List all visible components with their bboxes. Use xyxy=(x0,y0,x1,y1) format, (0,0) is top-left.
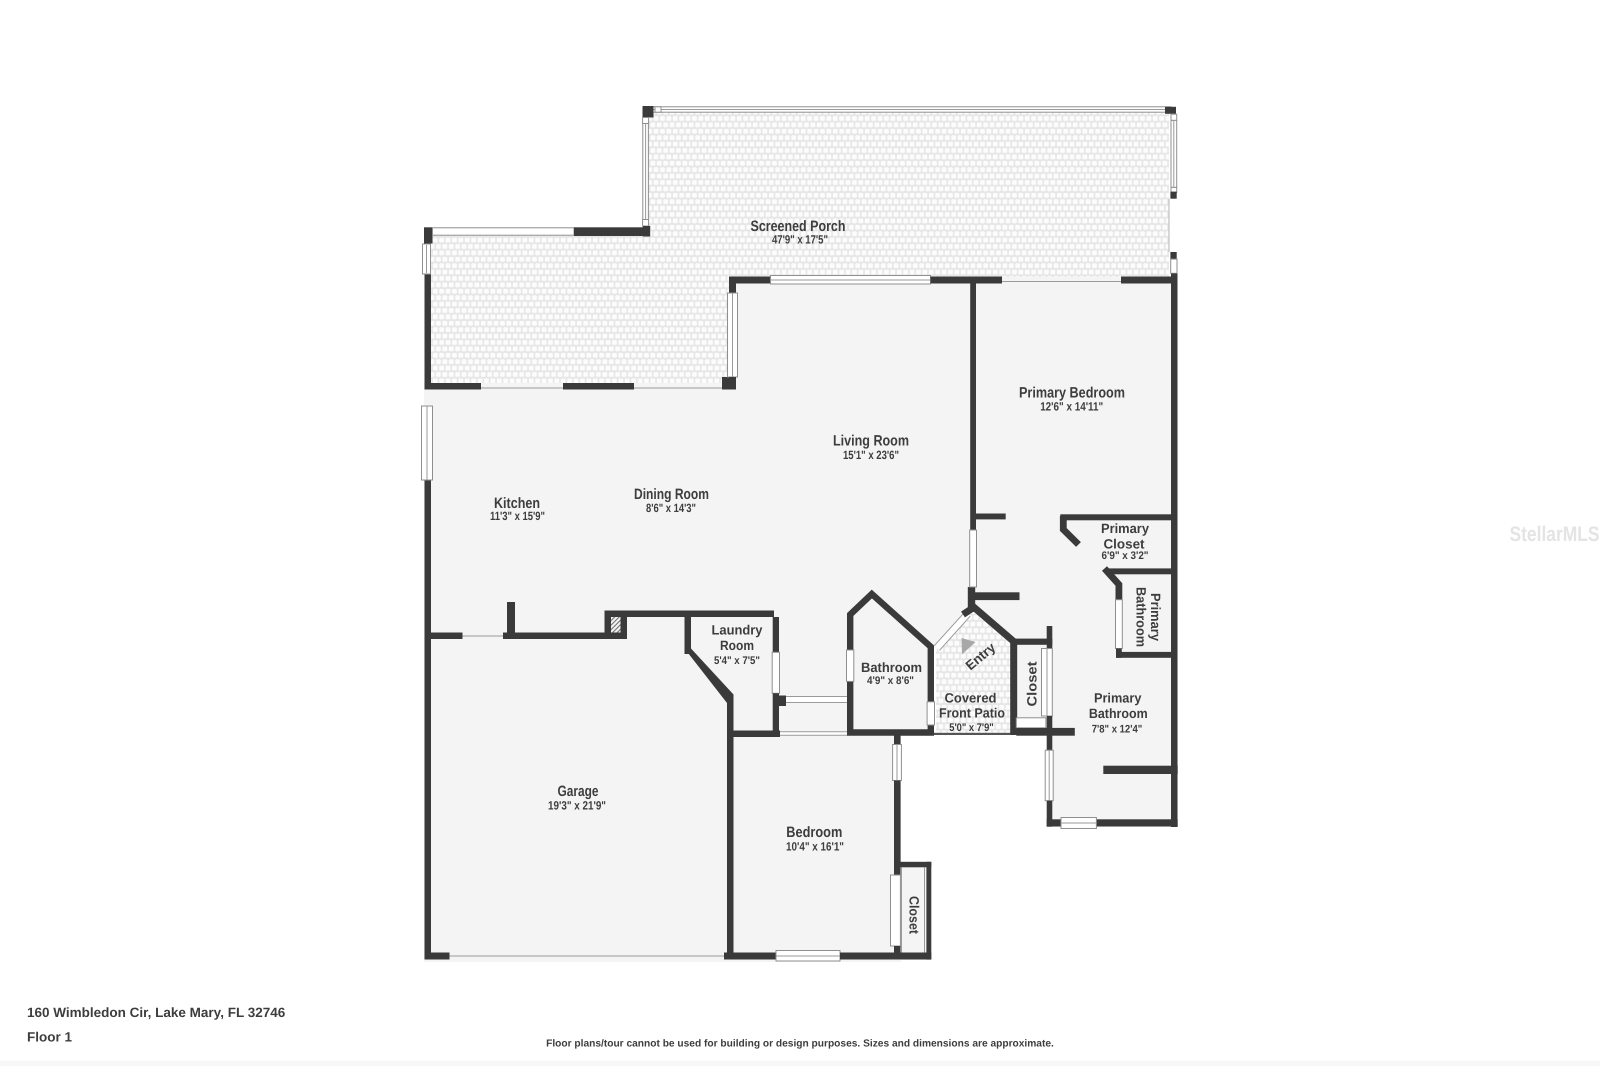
svg-text:Bedroom: Bedroom xyxy=(786,824,842,841)
svg-text:11'3" x 15'9": 11'3" x 15'9" xyxy=(490,509,545,523)
svg-text:Floor plans/tour cannot be use: Floor plans/tour cannot be used for buil… xyxy=(546,1039,1054,1050)
svg-text:StellarMLS: StellarMLS xyxy=(1510,523,1600,546)
svg-text:Closet: Closet xyxy=(907,896,922,934)
svg-text:47'9" x 17'5": 47'9" x 17'5" xyxy=(772,233,828,247)
svg-text:Primary: Primary xyxy=(1101,521,1149,536)
svg-text:4'9" x 8'6": 4'9" x 8'6" xyxy=(867,675,914,687)
svg-text:Bathroom: Bathroom xyxy=(1089,706,1148,721)
svg-text:Bathroom: Bathroom xyxy=(1134,587,1149,647)
svg-text:5'0" x 7'9": 5'0" x 7'9" xyxy=(949,722,994,734)
svg-text:Covered: Covered xyxy=(945,691,997,706)
svg-text:10'4" x 16'1": 10'4" x 16'1" xyxy=(786,840,844,854)
svg-text:Room: Room xyxy=(720,638,754,653)
svg-text:Front Patio: Front Patio xyxy=(939,706,1005,721)
svg-text:160 Wimbledon Cir, Lake Mary,: 160 Wimbledon Cir, Lake Mary, FL 32746 xyxy=(27,1005,286,1020)
svg-text:Primary: Primary xyxy=(1148,593,1163,641)
svg-text:7'8" x 12'4": 7'8" x 12'4" xyxy=(1092,724,1143,736)
svg-text:19'3" x 21'9": 19'3" x 21'9" xyxy=(548,799,606,813)
svg-text:Laundry: Laundry xyxy=(712,623,763,638)
svg-text:Garage: Garage xyxy=(558,783,599,800)
svg-text:Living Room: Living Room xyxy=(833,433,909,450)
svg-text:6'9" x 3'2": 6'9" x 3'2" xyxy=(1102,550,1149,562)
svg-text:8'6" x 14'3": 8'6" x 14'3" xyxy=(646,501,696,515)
svg-text:12'6" x 14'11": 12'6" x 14'11" xyxy=(1040,400,1103,414)
svg-text:Primary: Primary xyxy=(1094,691,1142,706)
svg-text:Floor 1: Floor 1 xyxy=(27,1030,72,1045)
svg-text:15'1" x 23'6": 15'1" x 23'6" xyxy=(843,448,899,462)
svg-text:5'4" x 7'5": 5'4" x 7'5" xyxy=(714,655,760,667)
svg-text:Bathroom: Bathroom xyxy=(861,660,922,675)
svg-text:Closet: Closet xyxy=(1025,661,1040,707)
